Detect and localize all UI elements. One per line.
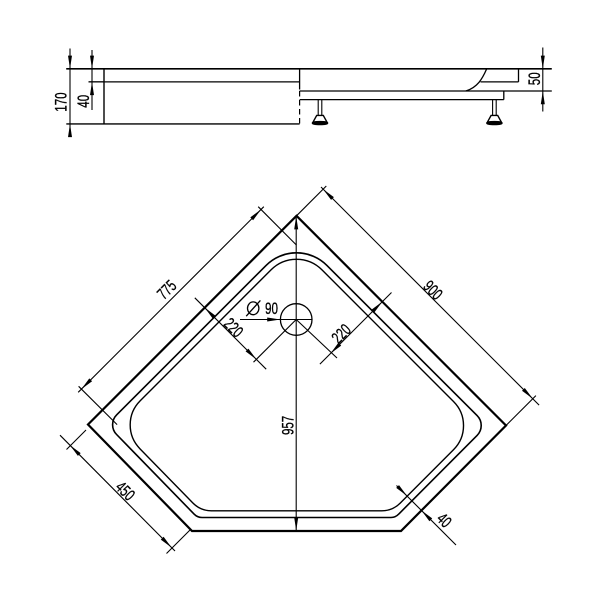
svg-text:900: 900: [419, 277, 445, 303]
svg-text:40: 40: [75, 95, 93, 108]
svg-text:450: 450: [112, 478, 138, 504]
svg-text:50: 50: [526, 72, 544, 85]
svg-text:220: 220: [329, 321, 355, 347]
svg-text:170: 170: [53, 92, 71, 111]
svg-text:40: 40: [433, 510, 455, 532]
svg-text:957: 957: [279, 416, 297, 435]
svg-text:220: 220: [220, 315, 246, 341]
svg-text:90: 90: [265, 300, 278, 318]
svg-text:775: 775: [154, 277, 180, 303]
